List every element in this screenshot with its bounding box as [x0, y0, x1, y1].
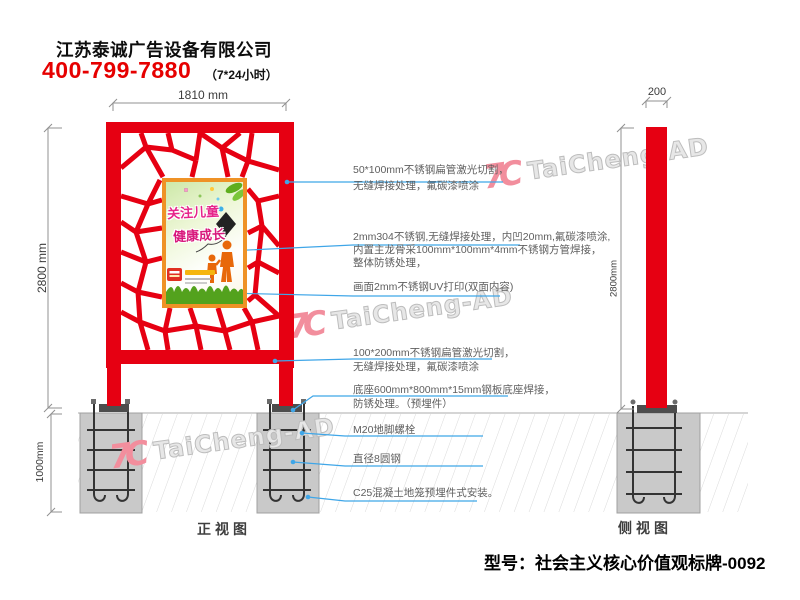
annotation-line: 直径8圆钢	[353, 453, 401, 466]
poster-logo-block	[167, 268, 215, 284]
annotation-line: C25混凝土地笼预埋件式安装。	[353, 487, 498, 500]
poster-title-line2: 健康成长	[173, 224, 226, 246]
annotation-top-tube: 50*100mm不锈钢扁管激光切割， 无缝焊接处理，氟碳漆喷涂	[353, 162, 509, 194]
annotation-bottom-tube: 100*200mm不锈钢扁管激光切割， 无缝焊接处理，氟碳漆喷涂	[353, 346, 515, 374]
annotation-base-plate: 底座600mm*800mm*15mm钢板底座焊接， 防锈处理。（预埋件）	[353, 383, 555, 411]
front-view-label: 正视图	[197, 519, 251, 539]
annotation-line: 底座600mm*800mm*15mm钢板底座焊接，	[353, 383, 555, 397]
dim-side-width: 200	[634, 86, 680, 98]
poster-panel: 关注儿童 健康成长	[162, 178, 247, 308]
blueprint-canvas: 7C TaiCheng-AD 7C TaiCheng-AD 7C TaiChen…	[0, 0, 800, 600]
side-view-label: 侧视图	[618, 518, 672, 538]
side-view-pole	[646, 127, 667, 408]
annotation-cabinet: 2mm304不锈钢,无缝焊接处理，内凹20mm,氟碳漆喷涂, 内置主龙骨采100…	[353, 231, 610, 269]
annotation-line: 2mm304不锈钢,无缝焊接处理，内凹20mm,氟碳漆喷涂,	[353, 231, 610, 244]
dim-front-height: 2800 mm	[35, 208, 49, 328]
model-number: 型号：社会主义核心价值观标牌-0092	[484, 549, 765, 574]
annotation-anchor-bolt: M20地脚螺栓	[353, 424, 415, 437]
dim-foundation-depth: 1000mm	[34, 412, 46, 512]
annotation-line: 画面2mm不锈钢UV打印(双面内容)	[353, 281, 513, 294]
poster-title-line1: 关注儿童	[167, 201, 220, 223]
phone-number: 400-799-7880	[42, 57, 191, 84]
annotation-line: 内置主龙骨采100mm*100mm*4mm不锈钢方管焊接，	[353, 244, 610, 257]
annotation-line: 无缝焊接处理，氟碳漆喷涂	[353, 360, 515, 374]
annotation-line: 50*100mm不锈钢扁管激光切割，	[353, 162, 509, 178]
annotation-line: 无缝焊接处理，氟碳漆喷涂	[353, 178, 509, 194]
annotation-line: 100*200mm不锈钢扁管激光切割，	[353, 346, 515, 360]
annotation-rebar: 直径8圆钢	[353, 453, 401, 466]
annotation-print-face: 画面2mm不锈钢UV打印(双面内容)	[353, 281, 513, 294]
family-silhouette	[207, 241, 234, 284]
annotation-line: M20地脚螺栓	[353, 424, 415, 437]
annotation-line: 整体防锈处理，	[353, 257, 610, 270]
annotation-concrete: C25混凝土地笼预埋件式安装。	[353, 487, 498, 500]
annotation-line: 防锈处理。（预埋件）	[353, 397, 555, 411]
service-hours: （7*24小时）	[205, 66, 278, 83]
grass	[166, 286, 243, 305]
dim-front-width: 1810 mm	[120, 88, 286, 102]
